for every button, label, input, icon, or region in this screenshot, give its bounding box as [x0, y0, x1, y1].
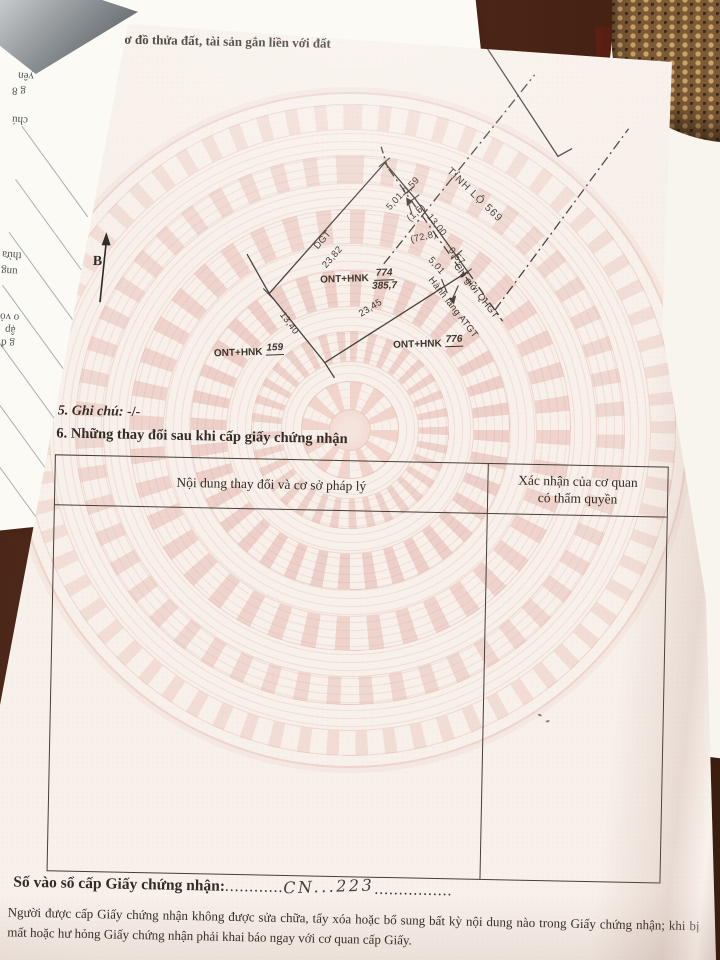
- page-content: 4. Sơ đồ thửa đất, tài sản gắn liền với …: [0, 0, 720, 960]
- road-edge-dashed: [384, 72, 535, 267]
- section5-label: 5. Ghi chú:: [58, 403, 124, 419]
- underpage-text: ung: [1, 264, 18, 277]
- boundary-extension: [324, 363, 334, 378]
- tick-mark: [263, 288, 273, 298]
- extension-line: [381, 147, 388, 168]
- road-line-bracket: [467, 22, 575, 157]
- underpage-text: thừa: [2, 248, 22, 261]
- registry-dots: ................: [374, 881, 452, 900]
- table-cell-authority: [480, 514, 666, 883]
- parcel-776-number: 776: [444, 334, 463, 348]
- col-header-authority-line1: Xác nhận của cơ quan: [518, 472, 638, 491]
- north-arrow: B: [85, 226, 127, 313]
- parcel-774-area: 385,7: [372, 280, 397, 292]
- measure-23-45: 23,45: [357, 297, 384, 320]
- road-edge-dashed: [495, 126, 629, 313]
- changes-table: Nội dung thay đổi và cơ sở pháp lý Xác n…: [47, 454, 669, 883]
- underpage-text: ập: [5, 324, 16, 337]
- registry-number-handwritten: CN...223: [283, 875, 375, 897]
- measure-5-01-right: 5,01: [426, 255, 447, 277]
- registry-label: Số vào sổ cấp Giấy chứng nhận:: [13, 874, 225, 895]
- boundary-extension: [246, 254, 270, 293]
- underpage-text: g đ: [1, 337, 16, 350]
- parcel-159-label: ONT+HNK 159: [214, 346, 285, 361]
- measure-5-01-top: 5,01: [384, 191, 406, 213]
- measure-13-40: 13,40: [277, 310, 301, 337]
- parcel-776-label: ONT+HNK 776: [393, 338, 464, 353]
- underpage-text: yên: [18, 69, 35, 82]
- parcel-774-fraction: 774 385,7: [371, 268, 397, 292]
- road-name-dgt: DGT: [312, 229, 334, 252]
- certificate-page: 4. Sơ đồ thửa đất, tài sản gắn liền với …: [0, 0, 720, 960]
- col-header-changes: Nội dung thay đổi và cơ sở pháp lý: [55, 455, 489, 513]
- parcel-774-use: ONT+HNK: [320, 273, 369, 286]
- parcel-159-number: 159: [265, 342, 284, 356]
- underpage-text: chú: [12, 113, 29, 126]
- measure-0-59: 0,59: [400, 175, 422, 197]
- underpage-grid-line: [0, 338, 62, 429]
- col-header-authority: Xác nhận của cơ quan có thẩm quyền: [488, 464, 668, 517]
- section5-value: -/-: [127, 405, 141, 420]
- parcel-776-use: ONT+HNK: [393, 338, 442, 351]
- footer-notice: Người được cấp Giấy chứng nhận không đượ…: [7, 902, 700, 956]
- col-header-authority-line2: có thẩm quyền: [538, 490, 618, 508]
- underpage-text: g 8: [12, 85, 27, 98]
- north-label: B: [93, 254, 103, 269]
- parcel-774-number: 774: [374, 268, 395, 281]
- parcel-159-use: ONT+HNK: [214, 347, 263, 360]
- road-name-tinh-lo-569: TỈNH LỘ 569: [444, 165, 505, 224]
- photo-of-certificate: uệ yên g 8 chú thừa ung o vỏ ập g đ 4. S…: [0, 0, 720, 960]
- measure-72-8: (72,8): [409, 229, 437, 246]
- table-cell-changes: [48, 505, 488, 879]
- dimension-arrow: [406, 197, 413, 206]
- measure-23-82: 23,82: [320, 244, 345, 270]
- measure-1-5: (1,5): [405, 202, 428, 224]
- underpage-text: o vỏ: [0, 310, 20, 323]
- tick-mark: [408, 194, 419, 203]
- tick-mark: [379, 158, 390, 167]
- parcel-774-label: ONT+HNK 774 385,7: [320, 272, 397, 297]
- registry-dots: ............: [225, 878, 284, 896]
- section5-note: 5. Ghi chú: -/-: [58, 403, 141, 421]
- table-body: [48, 505, 667, 882]
- section6-title: 6. Những thay đổi sau khi cấp giấy chứng…: [56, 425, 348, 448]
